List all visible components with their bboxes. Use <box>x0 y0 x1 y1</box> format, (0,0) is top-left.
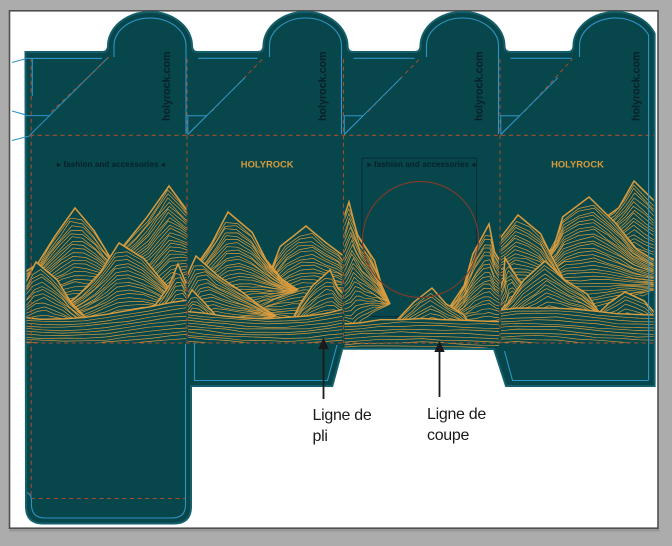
svg-text:holyrock.com: holyrock.com <box>161 52 173 122</box>
svg-text:coupe: coupe <box>427 427 469 444</box>
svg-text:holyrock.com: holyrock.com <box>317 52 329 122</box>
svg-text:▸ fashion and accessories ◂: ▸ fashion and accessories ◂ <box>56 160 166 169</box>
svg-text:HOLYROCK: HOLYROCK <box>551 159 604 170</box>
svg-text:▸ fashion and accessories ◂: ▸ fashion and accessories ◂ <box>366 160 476 169</box>
svg-text:pli: pli <box>313 428 328 445</box>
svg-text:holyrock.com: holyrock.com <box>631 52 643 122</box>
svg-text:HOLYROCK: HOLYROCK <box>241 159 294 170</box>
svg-text:Ligne de: Ligne de <box>313 407 372 424</box>
svg-text:Ligne de: Ligne de <box>427 406 486 423</box>
svg-text:holyrock.com: holyrock.com <box>474 52 486 122</box>
